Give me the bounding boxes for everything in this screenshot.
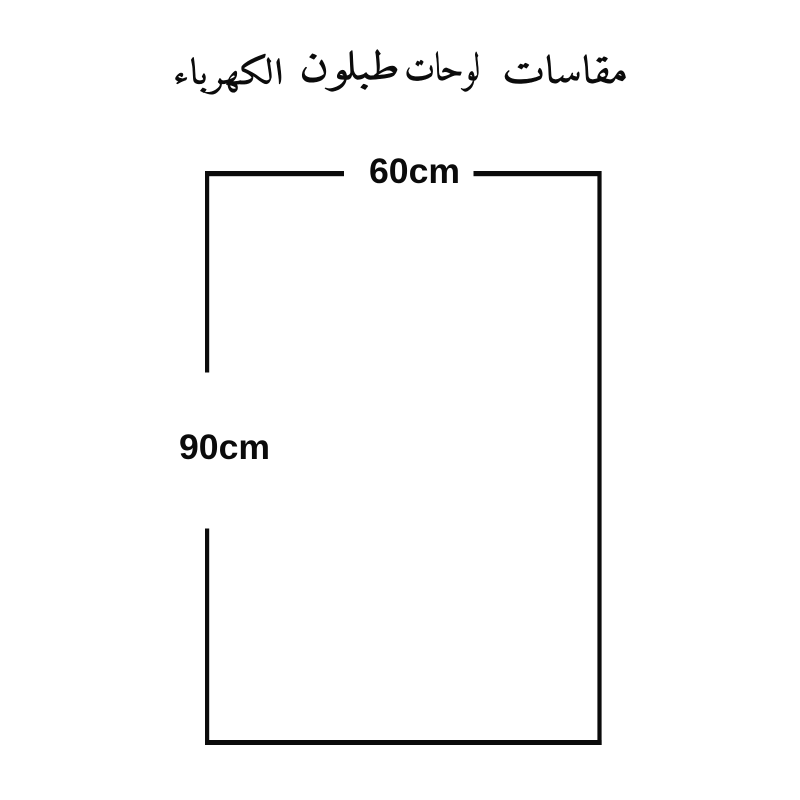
svg-text:60cm: 60cm: [369, 151, 460, 191]
svg-text:90cm: 90cm: [179, 427, 270, 467]
